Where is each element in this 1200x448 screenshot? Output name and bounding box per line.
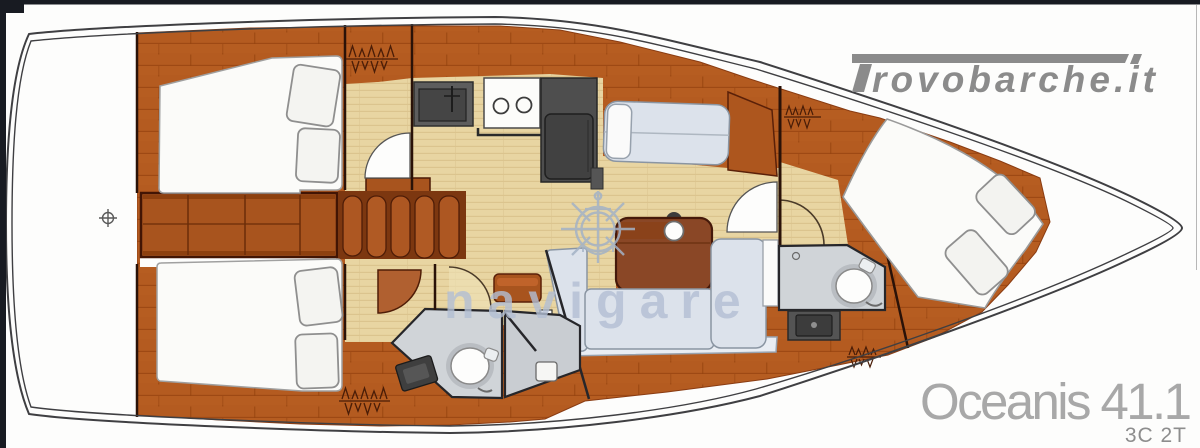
svg-text:navigare: navigare <box>444 273 754 329</box>
svg-text:Oceanis 41.1: Oceanis 41.1 <box>920 373 1192 430</box>
svg-text:3C 2T: 3C 2T <box>1125 424 1187 447</box>
